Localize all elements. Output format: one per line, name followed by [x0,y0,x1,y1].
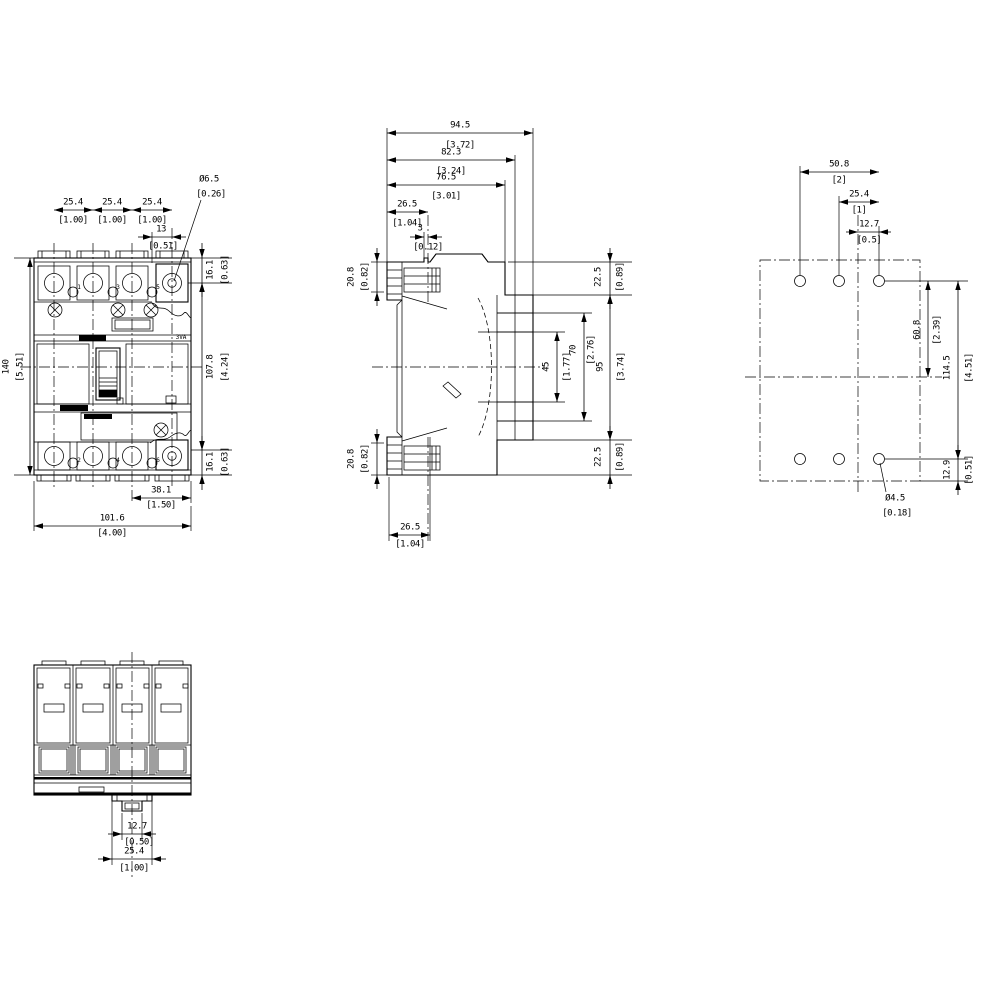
dim-top-right-mm: 22.5 [595,267,604,287]
dim-foot-in: [1.04] [395,541,425,550]
label-mount-hole-dia-in: [0.18] [882,510,912,519]
dim-pole-pitch-2-in: [1.00] [97,217,127,226]
pole-number-top-5: 5 [156,285,160,291]
pole-number-bottom-2: 2 [77,458,81,464]
dim-drill-span-mm: 50.8 [829,161,849,170]
pole-number-bottom-4: 4 [116,458,120,464]
dim-hole-offset-in: [0.51] [148,243,178,252]
dim-anchor-mm: 38.1 [151,487,171,496]
brand-label: 3VA [176,335,187,341]
side-view [372,215,545,541]
dim-drill-total-in: [4.51] [966,353,975,383]
dim-rear-height-mm: 95 [597,362,606,372]
dim-rib-mm: 3 [418,225,423,234]
dim-body-height-mm: 107.8 [207,355,216,380]
dim-bottom-terminal-in: [0.63] [222,447,231,477]
dim-depth-mm: 94.5 [450,122,470,131]
dim-lug-top-mm: 20.8 [348,267,357,287]
dim-foot-mm: 26.5 [400,524,420,533]
dim-clip-width-mm: 25.4 [124,848,144,857]
pole-number-bottom-6: 6 [156,458,160,464]
dim-rail-slot-mm: 12.7 [127,823,147,832]
label-terminal-hole-dia-in: [0.26] [196,191,226,200]
dim-drill-half-in: [0.5] [857,237,882,246]
dim-mount-offset-mm: 76.5 [436,174,456,183]
dim-clip-width-in: [1.00] [119,865,149,874]
dim-drill-pitch-mm: 25.4 [849,191,869,200]
dim-pole-pitch-1-mm: 25.4 [63,199,83,208]
dim-width-in: [4.00] [97,530,127,539]
dim-bottom-right-in: [0.89] [617,442,626,472]
dim-rear-height-in: [3.74] [618,352,627,382]
dim-top-terminal-in: [0.63] [222,255,231,285]
dim-pole-pitch-3-mm: 25.4 [142,199,162,208]
dim-lug-top-in: [0.82] [362,262,371,292]
pole-number-top-3: 3 [116,285,120,291]
front-view [20,228,205,503]
dim-drill-total-mm: 114.5 [944,356,953,381]
dim-hole-offset-mm: 13 [156,226,166,235]
dim-rib-in: [0.12] [413,244,443,253]
dim-drill-upper-mm: 60.8 [914,320,923,340]
dim-mount-offset-in: [3.01] [431,193,461,202]
dim-rail-outer-mm: 70 [570,345,579,355]
dim-pole-pitch-2-mm: 25.4 [102,199,122,208]
dim-front-offset-mm: 26.5 [397,201,417,210]
dim-drill-pitch-in: [1] [852,207,867,216]
dim-width-mm: 101.6 [100,515,125,524]
dim-drill-lower-mm: 12.9 [944,460,953,480]
dim-drill-lower-in: [0.51] [966,455,975,485]
dim-body-height-in: [4.24] [222,352,231,382]
dim-drill-half-mm: 12.7 [859,221,879,230]
dim-top-terminal-mm: 16.1 [207,260,216,280]
dim-bottom-terminal-mm: 16.1 [207,452,216,472]
label-terminal-hole-dia-mm: Ø6.5 [199,176,219,185]
dim-anchor-in: [1.50] [146,502,176,511]
dim-drill-upper-in: [2.39] [934,315,943,345]
dim-rail-outer-in: [2.76] [588,335,597,365]
dim-height-in: [5.51] [17,352,26,382]
dim-bottom-right-mm: 22.5 [595,447,604,467]
dimension-drawing: 25.4 [1.00] 25.4 [1.00] 25.4 [1.00] 13 [… [0,0,1000,1000]
dim-rear-offset-mm: 82.3 [441,149,461,158]
dim-top-right-in: [0.89] [617,262,626,292]
dim-pole-pitch-1-in: [1.00] [58,217,88,226]
dim-rail-inner-in: [1.77] [564,352,573,382]
dim-lug-bottom-in: [0.82] [362,444,371,474]
dim-rail-inner-mm: 45 [543,362,552,372]
pole-number-top-1: 1 [77,285,81,291]
bottom-view [34,652,191,880]
dim-drill-span-in: [2] [832,177,847,186]
dim-lug-bottom-mm: 20.8 [348,449,357,469]
label-mount-hole-dia-mm: Ø4.5 [885,495,905,504]
dim-height-mm: 140 [3,360,12,375]
